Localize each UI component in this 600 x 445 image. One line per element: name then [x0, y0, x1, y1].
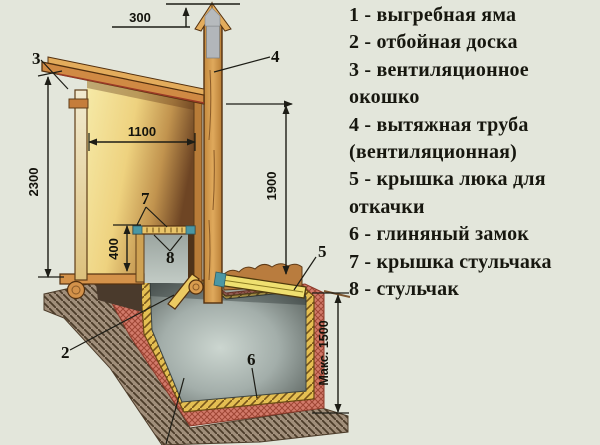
legend-item-7: 7 - крышка стульчака [349, 249, 598, 276]
window-sill [69, 99, 88, 108]
legend-item-3: 3 - вентиляционное окошко [349, 57, 598, 112]
dim-max-1500-label: Макс. 1500 [317, 320, 331, 385]
dim-2300: 2300 [26, 71, 64, 277]
legend-item-6: 6 - глиняный замок [349, 221, 598, 248]
callout-8: 8 [166, 248, 175, 267]
log-end [189, 280, 203, 294]
callout-5: 5 [318, 242, 327, 261]
dim-400-label: 400 [106, 238, 121, 260]
legend: 1 - выгребная яма 2 - отбойная доска 3 -… [349, 2, 598, 303]
legend-item-5: 5 - крышка люка для откачки [349, 166, 598, 221]
dim-1900-label: 1900 [264, 172, 279, 201]
outhouse-diagram: 300 2300 1100 1900 400 [0, 0, 350, 445]
legend-item-8: 8 - стульчак [349, 276, 598, 303]
dim-300-label: 300 [129, 10, 151, 25]
dim-2300-label: 2300 [26, 168, 41, 197]
ground-line [324, 291, 350, 297]
dim-1100-label: 1100 [128, 124, 156, 139]
seat-front-post [136, 232, 144, 282]
back-wall [194, 100, 202, 282]
callout-6: 6 [247, 350, 256, 369]
outhouse-cesspit-figure: 300 2300 1100 1900 400 [0, 0, 600, 445]
legend-item-1: 1 - выгребная яма [349, 2, 598, 29]
dim-1900: 1900 [226, 104, 292, 274]
pipe-opening [207, 26, 220, 58]
left-wall [69, 90, 88, 280]
callout-2: 2 [61, 343, 70, 362]
callout-3: 3 [32, 49, 41, 68]
legend-item-2: 2 - отбойная доска [349, 29, 598, 56]
callout-4: 4 [271, 47, 280, 66]
legend-item-4: 4 - вытяжная труба (вентиляционная) [349, 112, 598, 167]
floor-log-end [68, 282, 85, 299]
callout-7: 7 [141, 189, 150, 208]
